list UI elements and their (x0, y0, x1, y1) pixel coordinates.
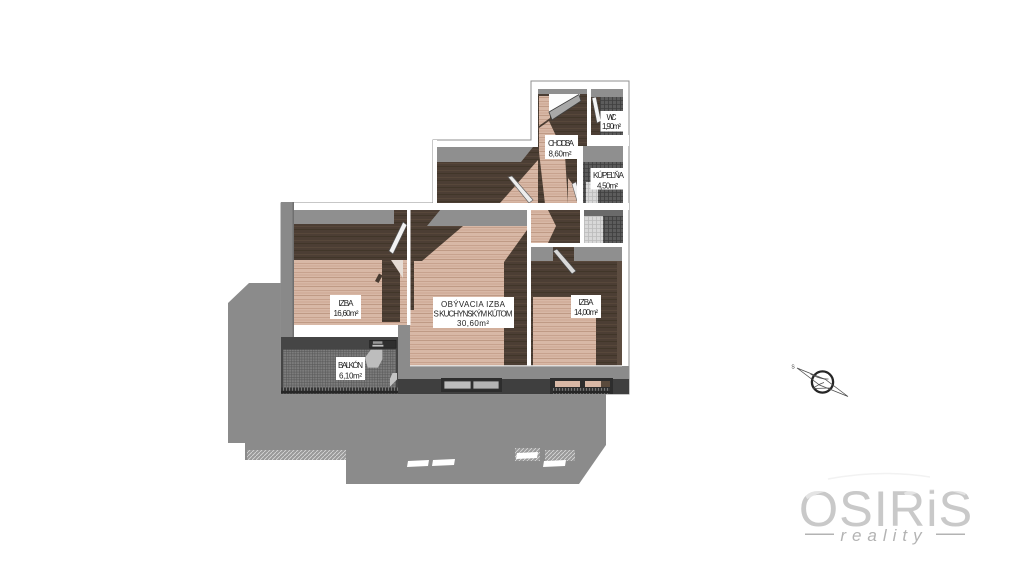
svg-text:16,60m²: 16,60m² (334, 309, 359, 318)
svg-text:8,60m²: 8,60m² (549, 150, 572, 159)
svg-text:6,10m²: 6,10m² (339, 372, 362, 381)
svg-text:WC: WC (607, 113, 617, 122)
svg-text:reality: reality (840, 526, 927, 545)
svg-text:4,50m²: 4,50m² (597, 182, 618, 191)
svg-text:BALKÓN: BALKÓN (338, 361, 363, 370)
svg-text:OBÝVACIA IZBA: OBÝVACIA IZBA (441, 300, 506, 309)
svg-text:IZBA: IZBA (339, 299, 355, 308)
svg-text:1,90m²: 1,90m² (602, 122, 621, 131)
svg-text:S KUCHYNSKÝM KÚTOM: S KUCHYNSKÝM KÚTOM (434, 310, 513, 319)
svg-text:IZBA: IZBA (579, 298, 595, 307)
svg-text:KÚPEĽŇA: KÚPEĽŇA (593, 171, 625, 180)
svg-text:CHODBA: CHODBA (548, 139, 575, 148)
svg-text:30,60m²: 30,60m² (457, 319, 489, 328)
svg-text:14,00m²: 14,00m² (574, 308, 598, 317)
